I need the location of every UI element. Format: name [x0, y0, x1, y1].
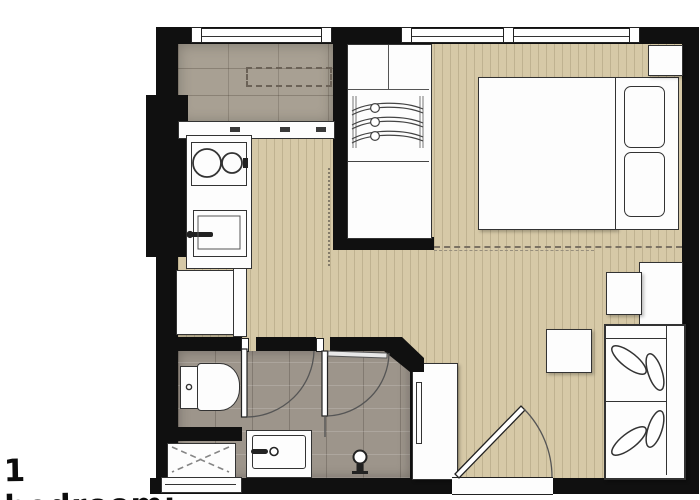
- pillow-1: [624, 86, 665, 148]
- wall-bath-top-c: [330, 337, 386, 351]
- bath-door-post-1: [241, 338, 249, 352]
- wall-bath-top-a: [156, 337, 242, 351]
- counter-band-tick-3: [316, 127, 326, 132]
- window-post-3: [401, 27, 412, 43]
- window-post-4: [503, 27, 514, 43]
- floorplan-canvas: 1 bedroom:: [0, 0, 700, 500]
- wall-wardrobe-left: [333, 32, 347, 250]
- sofa-arm-line: [605, 338, 666, 339]
- refrigerator: [176, 270, 235, 335]
- basin: [252, 435, 306, 469]
- refrigerator-door: [233, 268, 247, 337]
- wardrobe: [347, 44, 432, 239]
- overhead-cabinet-dashed-outline: [246, 67, 332, 87]
- pillow-2: [624, 152, 665, 217]
- counter-band-tick-2: [280, 127, 290, 132]
- kitchen-sink: [193, 210, 247, 257]
- sliding-track-dashed-line: [434, 246, 682, 248]
- shower-threshold-line: [165, 484, 236, 485]
- window-post-1: [191, 27, 202, 43]
- entry-threshold: [452, 477, 553, 495]
- wall-toilet-shower-divider: [156, 427, 242, 441]
- hob-two-burner: [191, 142, 247, 186]
- window-bedroom-2: [512, 28, 634, 43]
- sofa-seat-divider: [605, 401, 666, 402]
- wardrobe-divider-line: [388, 45, 389, 89]
- wall-bath-top-b: [256, 337, 316, 351]
- wardrobe-shelf-line: [348, 89, 429, 90]
- wardrobe-section-line: [348, 161, 429, 162]
- tall-cabinet-handle: [416, 382, 422, 444]
- window-post-2: [321, 27, 332, 43]
- counter-band-tick-1: [230, 127, 240, 132]
- bath-door-post-2: [316, 338, 324, 352]
- bed-mattress: [478, 77, 617, 230]
- sliding-track-dashed-line-2: [434, 250, 594, 251]
- sofa: [604, 324, 686, 480]
- plan-caption: 1 bedroom:: [3, 451, 164, 500]
- corner-table-small: [606, 272, 642, 315]
- curtain-dotted-line: [328, 168, 330, 266]
- shower-tray: [167, 443, 236, 478]
- corner-table-large: [639, 262, 683, 325]
- window-kitchen: [197, 28, 325, 43]
- window-bedroom-1: [409, 28, 505, 43]
- sofa-back-line: [666, 325, 667, 475]
- wall-left-pillar: [146, 95, 188, 257]
- coffee-table: [546, 329, 592, 373]
- window-post-5: [629, 27, 640, 43]
- nightstand: [648, 45, 683, 76]
- toilet-bowl: [197, 363, 240, 411]
